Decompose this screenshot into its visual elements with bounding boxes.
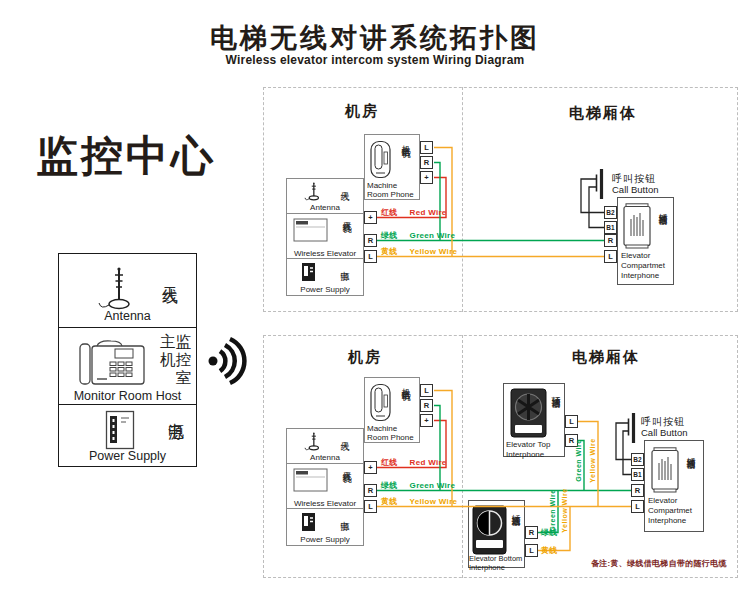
terminal-r: R	[631, 484, 644, 497]
terminal-r: R	[364, 234, 377, 247]
terminal-r: R	[420, 399, 433, 412]
wire-label-red: 红线Red Wire	[381, 207, 447, 218]
terminal-r: R	[604, 234, 617, 247]
wiring-diagram-page: 电梯无线对讲系统拓扑图 Wireless elevator intercom s…	[0, 0, 750, 589]
wire-label-yellow-vertical: Yellow Wire	[589, 431, 596, 491]
wire-label-yellow-short: 黄线	[541, 545, 558, 556]
terminal-plus: +	[364, 211, 377, 224]
wire-label-green: 绿线Green Wire	[381, 480, 455, 491]
wire-label-red: 红线Red Wire	[381, 457, 447, 468]
wire-green	[377, 163, 604, 241]
wire-label-yellow-vertical: Yellow Wire	[561, 481, 568, 541]
wire-label-green-short: 绿线	[541, 527, 558, 538]
terminal-b1: B1	[631, 468, 644, 481]
wire-label-yellow: 黄线Yellow Wire	[381, 496, 457, 507]
terminal-l: L	[364, 500, 377, 513]
wire-label-green-vertical: Green Wire	[575, 431, 582, 491]
wire-label-green: 绿线Green Wire	[381, 230, 455, 241]
terminal-l: L	[420, 141, 433, 154]
terminal-r: R	[420, 156, 433, 169]
terminal-plus: +	[420, 171, 433, 184]
note-text: 备注:黄、绿线借电梯自带的随行电缆	[591, 558, 727, 569]
call-button-label-en: Call Button	[641, 427, 687, 438]
terminal-r: R	[525, 526, 538, 539]
wire-label-yellow: 黄线Yellow Wire	[381, 246, 457, 257]
terminal-l: L	[364, 250, 377, 263]
terminal-l: L	[420, 384, 433, 397]
call-button-label-en: Call Button	[612, 184, 658, 195]
terminal-r: R	[364, 484, 377, 497]
terminal-l: L	[631, 500, 644, 513]
terminal-b2: B2	[631, 453, 644, 466]
terminal-b2: B2	[604, 206, 617, 219]
terminal-l: L	[565, 415, 578, 428]
terminal-l: L	[525, 544, 538, 557]
terminal-plus: +	[420, 414, 433, 427]
terminal-plus: +	[364, 461, 377, 474]
terminal-b1: B1	[604, 221, 617, 234]
terminal-l: L	[604, 250, 617, 263]
